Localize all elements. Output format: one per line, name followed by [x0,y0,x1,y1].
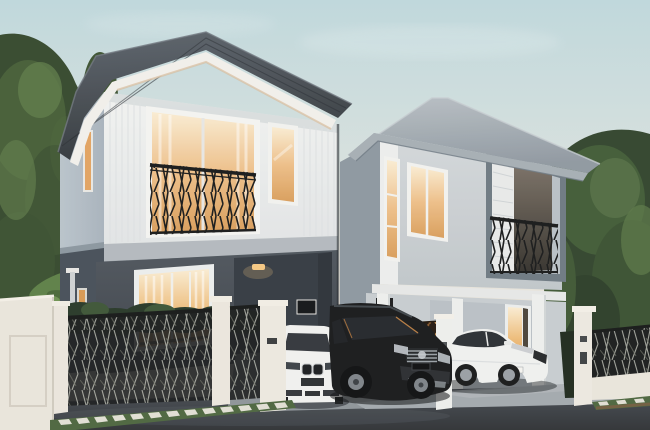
photo-render [0,0,650,430]
dusk-wash [0,0,650,430]
scene-canvas [0,0,650,430]
